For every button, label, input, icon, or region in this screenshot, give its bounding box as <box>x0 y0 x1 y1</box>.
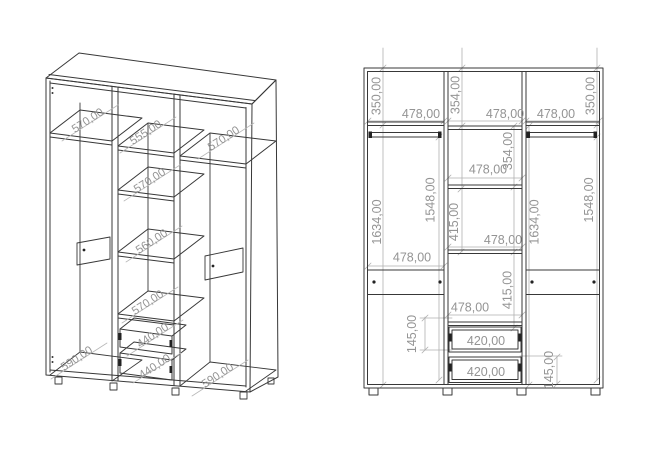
iso-dim-shelf-width: 570,00 <box>130 288 166 317</box>
iso-feet <box>55 377 274 399</box>
iso-dim-shelf-width: 560,00 <box>134 227 170 256</box>
front-dim-lower-height-left: 1634,00 <box>370 199 384 244</box>
front-dim-width-middle: 478,00 <box>484 233 522 247</box>
iso-dimension-labels: 570,00 555,00 570,00 570,00 560,00 570,0… <box>59 106 242 390</box>
front-dim-section-height: 415,00 <box>447 203 461 241</box>
wardrobe-technical-drawing: 570,00 555,00 570,00 570,00 560,00 570,0… <box>0 0 650 465</box>
front-dim-rod-height-left: 1548,00 <box>424 177 438 222</box>
isometric-view: 570,00 555,00 570,00 570,00 560,00 570,0… <box>46 53 278 399</box>
front-dim-top-height-middle: 354,00 <box>449 76 463 114</box>
front-view: 350,00 478,00 354,00 478,00 478,00 350,0… <box>364 48 603 395</box>
iso-dim-shelf-width: 570,00 <box>206 124 242 153</box>
front-dim-width-right: 478,00 <box>537 107 575 121</box>
front-dimension-labels: 350,00 478,00 354,00 478,00 478,00 350,0… <box>370 76 598 389</box>
iso-cabinet-shell <box>46 53 278 392</box>
front-dim-drawer-height-left: 145,00 <box>405 315 419 353</box>
front-dim-width-middle: 478,00 <box>486 107 524 121</box>
iso-dim-floor-width: 590,00 <box>59 344 95 373</box>
front-dim-drawer-height-right: 145,00 <box>542 351 556 389</box>
iso-back-edges <box>80 103 210 362</box>
front-dim-drawer-width: 420,00 <box>467 334 505 348</box>
front-dim-width-middle: 478,00 <box>469 163 507 177</box>
front-feet <box>369 388 600 395</box>
drawing-canvas: 570,00 555,00 570,00 570,00 560,00 570,0… <box>0 0 650 465</box>
iso-dim-shelf-width: 555,00 <box>128 118 164 147</box>
iso-shelves <box>50 110 276 325</box>
front-dim-width-left: 478,00 <box>393 251 431 265</box>
front-dim-drawer-width: 420,00 <box>467 365 505 379</box>
front-dim-section-height: 415,00 <box>501 271 515 309</box>
front-dim-top-height-right: 350,00 <box>584 77 598 115</box>
front-dim-top-height-left: 350,00 <box>370 77 384 115</box>
front-hanging-rods <box>369 132 598 139</box>
front-dim-lower-height-right: 1634,00 <box>528 199 542 244</box>
front-dim-width-middle: 478,00 <box>451 301 489 315</box>
front-dim-width-left: 478,00 <box>402 107 440 121</box>
iso-dim-shelf-width: 570,00 <box>132 166 168 195</box>
front-dim-rod-height-right: 1548,00 <box>582 177 596 222</box>
iso-hinge-dots <box>52 87 54 363</box>
front-rear-rails <box>368 270 600 295</box>
